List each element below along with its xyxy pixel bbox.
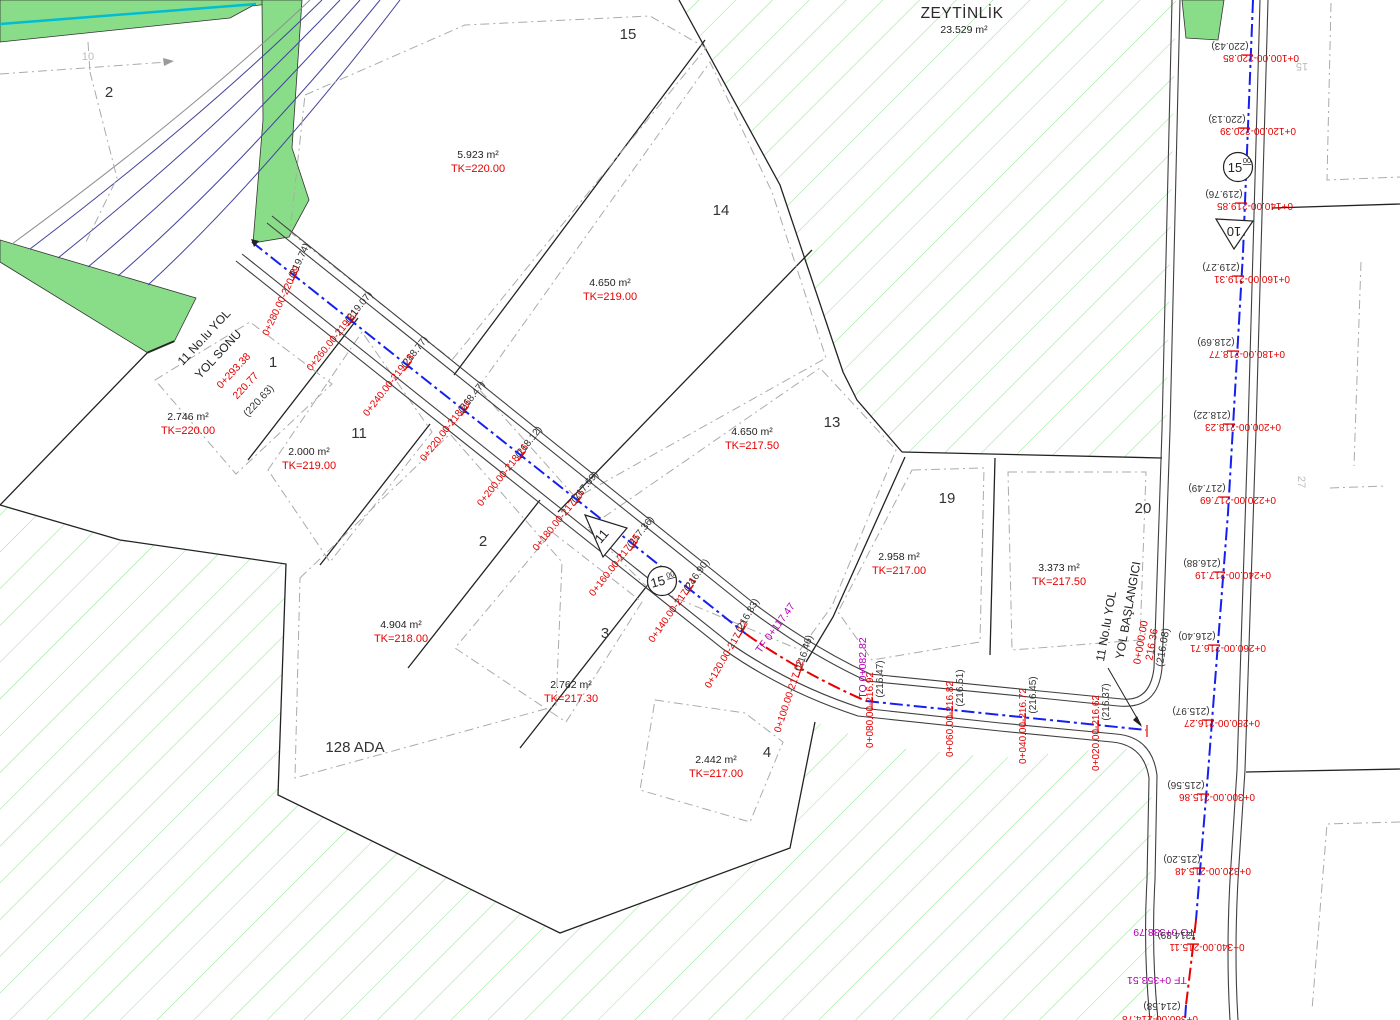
parcel-number: 20 xyxy=(1135,500,1152,517)
zeytinlik-title: ZEYTİNLİK xyxy=(921,4,1004,22)
parcel-area: 2.958 m² xyxy=(878,551,920,563)
station-label: 0+180.00-218.77 xyxy=(1209,348,1285,359)
station-ground: (217.36) xyxy=(625,514,657,550)
east-parcel-line xyxy=(1246,769,1400,772)
east-setback xyxy=(1312,822,1400,1010)
curve-point-tf1: TF 0+117.47 xyxy=(753,601,798,656)
east-setback xyxy=(1330,486,1385,488)
parcel-tk: TK=217.50 xyxy=(1032,576,1086,588)
parcel-area: 4.904 m² xyxy=(380,619,422,631)
setback-line xyxy=(838,468,984,660)
parcel-number: 15 xyxy=(620,26,637,43)
parcel-number: 2 xyxy=(105,84,113,101)
parcel-number: 11 xyxy=(351,425,367,442)
parcel-number: 4 xyxy=(763,744,771,761)
station-label: 0+200.00-218.23 xyxy=(1205,421,1281,432)
zeytinlik-hatch-area xyxy=(679,0,1176,458)
station-ground: (219.76) xyxy=(1205,188,1242,199)
highway-lane-line xyxy=(88,0,360,267)
parcel-area: 2.762 m² xyxy=(550,679,592,691)
station-ground: (216.46) xyxy=(794,634,816,673)
faint-parcel-number: 27 xyxy=(1295,476,1307,488)
station-ground: (214.89) xyxy=(1157,929,1194,940)
parcel-number: 1 xyxy=(269,354,277,371)
station-label: 0+320.00-215.48 xyxy=(1175,865,1251,876)
station-ground: (216.37) xyxy=(1101,683,1112,720)
parcel-tk: TK=218.00 xyxy=(374,633,428,645)
start-leader-line xyxy=(1108,668,1141,725)
nw-block-boundary xyxy=(0,341,174,505)
curve-point-tf2: TF 0+353.51 xyxy=(1127,974,1187,986)
station-ground: (216.40) xyxy=(1178,630,1215,641)
road10-width-value: 15 xyxy=(1228,160,1242,175)
parcel-division xyxy=(520,582,650,748)
station-ground: (215.20) xyxy=(1163,853,1200,864)
station-ground: (220.13) xyxy=(1208,113,1245,124)
setback-line xyxy=(588,368,896,650)
parcel-tk: TK=217.30 xyxy=(544,693,598,705)
station-label: 0+100.00-220.85 xyxy=(1223,52,1299,63)
station-label: 0+140.00-219.85 xyxy=(1217,200,1293,211)
start-leader-arrowhead xyxy=(1133,716,1142,727)
parcel-tk: TK=219.00 xyxy=(583,291,637,303)
station-ground: (218.22) xyxy=(1193,409,1230,420)
station-label: 0+260.00-216.71 xyxy=(1190,642,1266,653)
parcel-area: 5.923 m² xyxy=(457,149,499,161)
station-ground: (216.51) xyxy=(955,669,966,706)
parcel-number: 14 xyxy=(713,202,730,219)
faint-parcel-number: 10 xyxy=(82,51,94,63)
station-ground: (216.47) xyxy=(875,660,886,697)
cadastral-plan: 11 15 00 15 00 10 ZEYTİNLİK 23.529 m² 12… xyxy=(0,0,1400,1020)
setback-line xyxy=(295,434,562,778)
parcel-area: 2.442 m² xyxy=(695,754,737,766)
parcel-tk: TK=217.00 xyxy=(689,768,743,780)
station-label: 0+340.00-215.11 xyxy=(1169,941,1245,952)
road10-width-decimals: 00 xyxy=(1243,156,1251,165)
station-label: 0+220.00-217.69 xyxy=(1200,494,1276,505)
parcel-division xyxy=(454,40,705,375)
parcel-area: 2.000 m² xyxy=(288,446,330,458)
plan-canvas: 11 15 00 15 00 10 ZEYTİNLİK 23.529 m² 12… xyxy=(0,0,1400,1020)
station-label: 0+160.00-219.31 xyxy=(1214,273,1290,284)
green-strip-ne xyxy=(253,0,309,243)
parcel-number: 3 xyxy=(601,625,609,642)
station-ground: (215.56) xyxy=(1167,779,1204,790)
south-hatch-area xyxy=(0,505,1156,1020)
parcel-division xyxy=(990,458,995,655)
station-ground: (215.97) xyxy=(1172,705,1209,716)
parcel-area: 4.650 m² xyxy=(731,426,773,438)
parcel-number: 19 xyxy=(939,490,956,507)
parcel-tk: TK=220.00 xyxy=(161,425,215,437)
east-setback xyxy=(1354,262,1361,466)
station-label-cut: 0+360.00-214.78 xyxy=(1122,1013,1198,1020)
parcel-number: 13 xyxy=(824,414,841,431)
station-ground: (219.27) xyxy=(1202,261,1239,272)
parcel-tk: TK=219.00 xyxy=(282,460,336,472)
station-ground: (220.43) xyxy=(1211,40,1248,51)
block-label: 128 ADA xyxy=(325,739,384,756)
dimension-leader xyxy=(0,62,168,74)
green-island-topright xyxy=(1182,0,1224,40)
parcel-tk: TK=217.00 xyxy=(872,565,926,577)
parcel-number: 2 xyxy=(479,533,487,550)
station-ground: (218.47) xyxy=(456,379,488,415)
road10-sign-number: 10 xyxy=(1227,224,1241,239)
station-ground: (216.88) xyxy=(1183,557,1220,568)
station-ground: (217.49) xyxy=(1188,482,1225,493)
parcel-area: 3.373 m² xyxy=(1038,562,1080,574)
east-setback xyxy=(1327,3,1400,180)
parcel-tk: TK=217.50 xyxy=(725,440,779,452)
green-strip-sw xyxy=(0,240,196,353)
station-label: 0+280.00-216.27 xyxy=(1184,717,1260,728)
leader-arrowhead xyxy=(163,58,174,66)
parcel-tk: TK=220.00 xyxy=(451,163,505,175)
station-ground: (219.07) xyxy=(343,289,375,325)
parcel-area: 4.650 m² xyxy=(589,277,631,289)
station-label: 0+240.00-217.19 xyxy=(1195,569,1271,580)
station-label: 0+300.00-215.86 xyxy=(1179,791,1255,802)
parcel-area: 2.746 m² xyxy=(167,411,209,423)
station-ground: (218.77) xyxy=(399,334,431,370)
station-ground: (218.69) xyxy=(1197,336,1234,347)
highway-lane-line xyxy=(118,0,380,276)
station-label: 0+120.00-220.39 xyxy=(1220,125,1296,136)
station-ground: (216.45) xyxy=(1028,676,1039,713)
zeytinlik-area: 23.529 m² xyxy=(940,24,988,36)
station-ground-cut: (214.58) xyxy=(1143,1000,1180,1011)
parcel-division xyxy=(320,424,430,565)
